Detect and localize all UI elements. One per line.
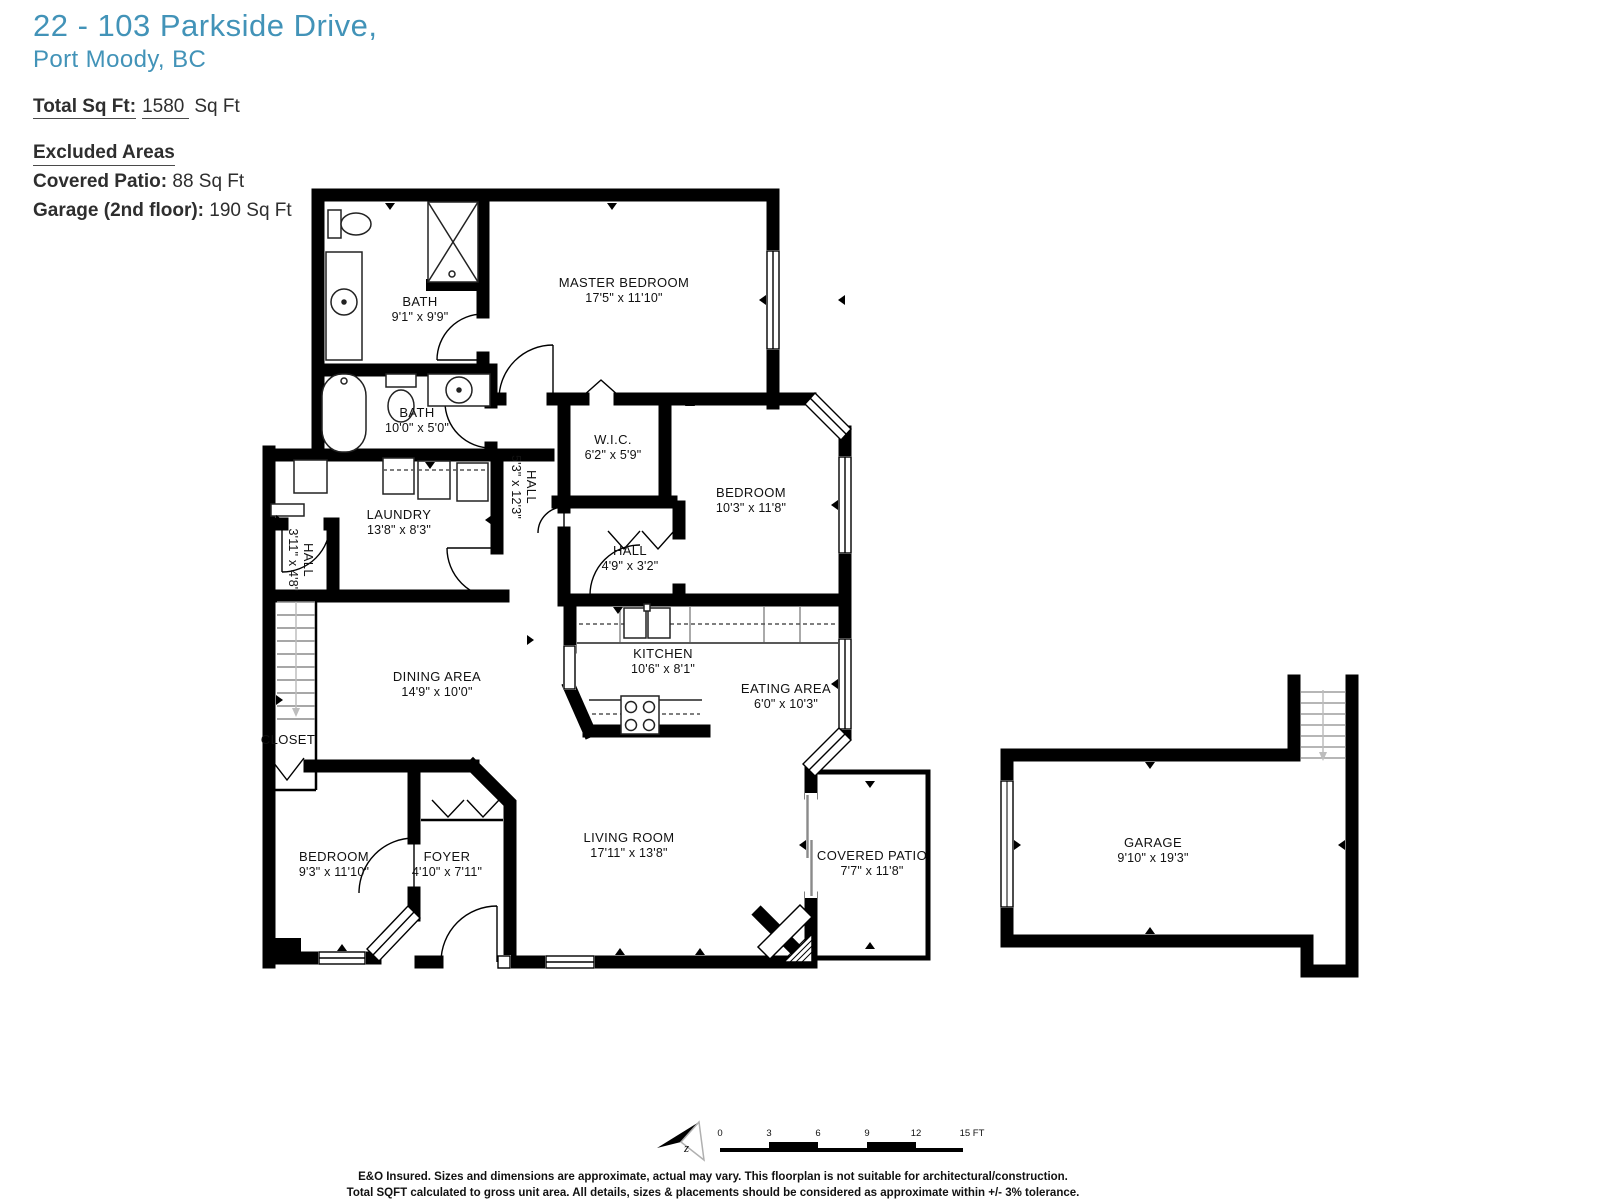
room-label-hall: HALL4'9" x 3'2" <box>602 543 659 573</box>
dimension-tick <box>1145 927 1155 934</box>
door-entry <box>441 906 497 962</box>
room-label-master-bedroom: MASTER BEDROOM17'5" x 11'10" <box>559 275 690 305</box>
corner-wall-block <box>263 938 301 962</box>
thin-partitions <box>269 596 503 820</box>
svg-text:4'10" x 7'11": 4'10" x 7'11" <box>412 865 482 879</box>
svg-text:LIVING ROOM: LIVING ROOM <box>583 830 674 845</box>
svg-text:6'0" x 10'3": 6'0" x 10'3" <box>754 697 818 711</box>
patio-slider <box>805 793 817 898</box>
room-label-bedroom: BEDROOM9'3" x 11'10" <box>299 849 369 879</box>
svg-text:10'3" x 11'8": 10'3" x 11'8" <box>716 501 786 515</box>
toilet-tank-1 <box>328 210 341 238</box>
svg-text:BEDROOM: BEDROOM <box>716 485 786 500</box>
scale-tick-0: 0 <box>717 1128 722 1139</box>
svg-text:5'3" x 12'3": 5'3" x 12'3" <box>509 455 523 519</box>
dimension-tick <box>613 607 623 614</box>
floorplan-svg: BATH9'1" x 9'9"MASTER BEDROOM17'5" x 11'… <box>0 0 1600 1200</box>
room-label-covered-patio: COVERED PATIO7'7" x 11'8" <box>817 848 927 878</box>
svg-text:LAUNDRY: LAUNDRY <box>367 507 432 522</box>
svg-text:CLOSET: CLOSET <box>261 732 315 747</box>
laundry-shelf <box>271 504 304 516</box>
room-label-closet: CLOSET <box>261 732 315 747</box>
dimension-tick <box>695 948 705 955</box>
burner <box>626 702 637 713</box>
laundry-cabinet <box>294 460 327 493</box>
door-bath2 <box>445 402 491 448</box>
dimension-tick <box>337 944 347 951</box>
washer <box>418 461 450 499</box>
laundry-box <box>383 458 414 494</box>
scale-tick-1: 3 <box>766 1128 771 1139</box>
svg-text:HALL: HALL <box>613 543 647 558</box>
room-label-hall: HALL5'3" x 12'3" <box>509 455 539 519</box>
svg-text:EATING AREA: EATING AREA <box>741 681 831 696</box>
disclaimer-line2: Total SQFT calculated to gross unit area… <box>313 1186 1113 1200</box>
svg-text:14'9" x 10'0": 14'9" x 10'0" <box>401 685 472 699</box>
room-label-hall: HALL3'11" x 4'8" <box>286 528 316 591</box>
room-label-laundry: LAUNDRY13'8" x 8'3" <box>367 507 432 537</box>
svg-text:9'3" x 11'10": 9'3" x 11'10" <box>299 865 369 879</box>
dimension-tick <box>527 635 534 645</box>
room-label-eating-area: EATING AREA6'0" x 10'3" <box>741 681 831 711</box>
disclaimer: E&O Insured. Sizes and dimensions are ap… <box>313 1170 1113 1200</box>
dimension-tick <box>276 695 283 705</box>
room-label-garage: GARAGE9'10" x 19'3" <box>1117 835 1188 865</box>
svg-text:KITCHEN: KITCHEN <box>633 646 693 661</box>
dimension-tick <box>865 781 875 788</box>
svg-text:17'5" x 11'10": 17'5" x 11'10" <box>585 291 662 305</box>
svg-text:17'11" x 13'8": 17'11" x 13'8" <box>590 846 667 860</box>
garage-door <box>1000 780 1014 908</box>
svg-text:9'1" x 9'9": 9'1" x 9'9" <box>392 310 449 324</box>
dimension-tick <box>1145 762 1155 769</box>
svg-text:HALL: HALL <box>524 470 539 504</box>
svg-text:MASTER BEDROOM: MASTER BEDROOM <box>559 275 690 290</box>
dimension-tick <box>1014 840 1021 850</box>
dimension-tick <box>385 203 395 210</box>
dimension-tick <box>759 295 766 305</box>
svg-text:BATH: BATH <box>399 405 434 420</box>
shower-head <box>449 271 455 277</box>
kitchen-sink-left <box>624 608 646 638</box>
room-label-living-room: LIVING ROOM17'11" x 13'8" <box>583 830 674 860</box>
dimension-tick <box>831 500 838 510</box>
dimension-tick <box>865 942 875 949</box>
dimension-tick <box>1338 840 1345 850</box>
floorplan-page: 22 - 103 Parkside Drive, Port Moody, BC … <box>0 0 1600 1200</box>
bathtub <box>322 374 366 452</box>
svg-text:10'0" x 5'0": 10'0" x 5'0" <box>385 421 449 435</box>
svg-text:FOYER: FOYER <box>424 849 471 864</box>
door-master <box>499 345 553 399</box>
svg-text:HALL: HALL <box>301 543 316 577</box>
scale-bar: 03691215 FT <box>717 1128 984 1152</box>
svg-text:7'7" x 11'8": 7'7" x 11'8" <box>840 864 903 878</box>
dimension-tick <box>615 948 625 955</box>
svg-text:BEDROOM: BEDROOM <box>299 849 369 864</box>
room-label-foyer: FOYER4'10" x 7'11" <box>412 849 482 879</box>
scale-tick-2: 6 <box>815 1128 820 1139</box>
room-label-w-i-c-: W.I.C.6'2" x 5'9" <box>585 432 642 462</box>
svg-text:4'9" x 3'2": 4'9" x 3'2" <box>602 559 659 573</box>
room-label-bedroom: BEDROOM10'3" x 11'8" <box>716 485 786 515</box>
bifold-foyer-closet <box>432 800 499 817</box>
room-label-bath: BATH9'1" x 9'9" <box>392 294 449 324</box>
fireplace <box>756 905 812 962</box>
disclaimer-line1: E&O Insured. Sizes and dimensions are ap… <box>313 1170 1113 1186</box>
burner <box>644 720 655 731</box>
dimension-tick <box>799 840 806 850</box>
burner <box>644 702 655 713</box>
tub-faucet <box>341 378 347 384</box>
room-label-kitchen: KITCHEN10'6" x 8'1" <box>631 646 695 676</box>
dryer <box>457 463 488 501</box>
kitchen-sink-right <box>648 608 670 638</box>
svg-text:W.I.C.: W.I.C. <box>594 432 632 447</box>
scale-tick-4: 12 <box>911 1128 922 1139</box>
scale-tick-3: 9 <box>864 1128 869 1139</box>
svg-text:GARAGE: GARAGE <box>1124 835 1182 850</box>
fixtures <box>271 202 838 734</box>
svg-text:DINING AREA: DINING AREA <box>393 669 481 684</box>
dimension-tick <box>607 203 617 210</box>
svg-text:10'6" x 8'1": 10'6" x 8'1" <box>631 662 695 676</box>
svg-text:COVERED PATIO: COVERED PATIO <box>817 848 927 863</box>
svg-text:BATH: BATH <box>402 294 437 309</box>
svg-text:13'8" x 8'3": 13'8" x 8'3" <box>367 523 431 537</box>
svg-text:3'11" x 4'8": 3'11" x 4'8" <box>286 528 300 591</box>
dimension-tick <box>485 515 492 525</box>
compass: z <box>657 1122 704 1160</box>
toilet-tank-2 <box>386 374 416 387</box>
scale-labels: 03691215 FT <box>717 1128 984 1139</box>
dimension-tick <box>831 679 838 689</box>
burner <box>626 720 637 731</box>
dimension-tick <box>838 295 845 305</box>
room-label-dining-area: DINING AREA14'9" x 10'0" <box>393 669 481 699</box>
scale-tick-5: 15 FT <box>960 1128 985 1139</box>
svg-text:9'10" x 19'3": 9'10" x 19'3" <box>1117 851 1188 865</box>
kitchen-faucet <box>644 604 650 611</box>
compass-letter: z <box>683 1140 689 1155</box>
svg-text:6'2" x 5'9": 6'2" x 5'9" <box>585 448 642 462</box>
toilet-bowl-1 <box>341 213 371 235</box>
